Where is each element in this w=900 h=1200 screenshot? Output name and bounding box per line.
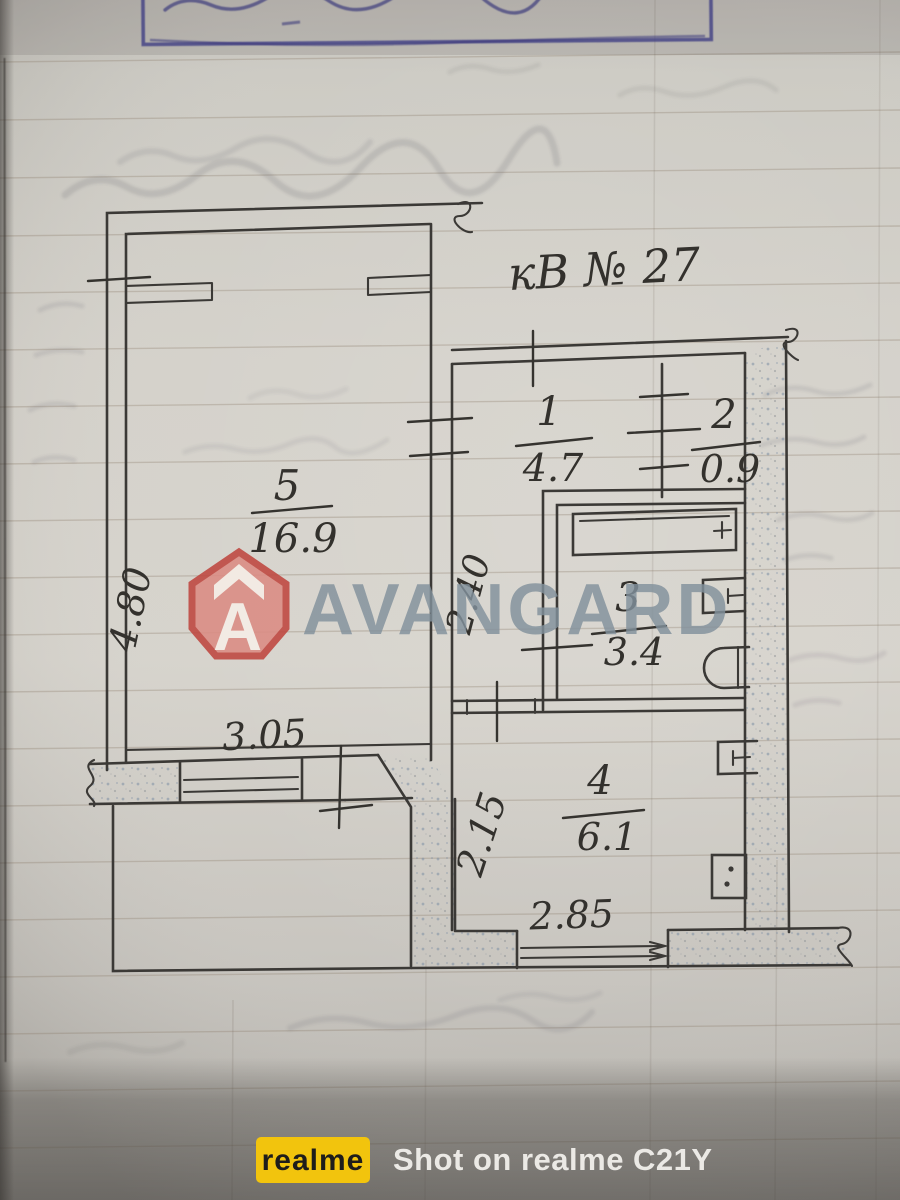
realme-watermark: realme Shot on realme C21Y — [256, 1137, 713, 1183]
bottom-dark-band — [0, 1058, 900, 1200]
floor-plan-photo: кВ № 27 5 16.9 1 4.7 2 0.9 3 3.4 — [0, 0, 900, 1200]
room-number: 5 — [274, 461, 301, 510]
room-area: 6.1 — [577, 815, 637, 859]
stove-burner-dot — [724, 881, 729, 886]
realme-caption-text: Shot on realme C21Y — [393, 1142, 713, 1177]
logo-letter-a: A — [213, 589, 265, 665]
dim-kitchen-window: 2.85 — [528, 892, 615, 939]
room-number: 4 — [586, 758, 612, 804]
stove-burner-dot — [728, 866, 733, 871]
dim-room5-window: 3.05 — [221, 711, 308, 759]
room-area: 16.9 — [248, 516, 337, 562]
room-number: 2 — [710, 392, 736, 438]
realme-badge-text: realme — [262, 1144, 365, 1177]
room-area: 4.7 — [522, 446, 584, 490]
wall-fill-kitchen-bottom-right — [668, 928, 852, 968]
avangard-brand-text: AVANGARD — [302, 570, 731, 650]
top-edge-shadow — [0, 0, 900, 55]
room-area: 0.9 — [700, 447, 760, 491]
page-edge-line — [4, 58, 6, 1062]
room-number: 1 — [536, 389, 561, 435]
apartment-label: кВ № 27 — [507, 237, 703, 301]
wall-fill-kitchen-bottom-left — [411, 932, 517, 968]
wall-fill-right — [745, 341, 789, 932]
wall-fill-bottom-left-seg — [90, 761, 180, 804]
